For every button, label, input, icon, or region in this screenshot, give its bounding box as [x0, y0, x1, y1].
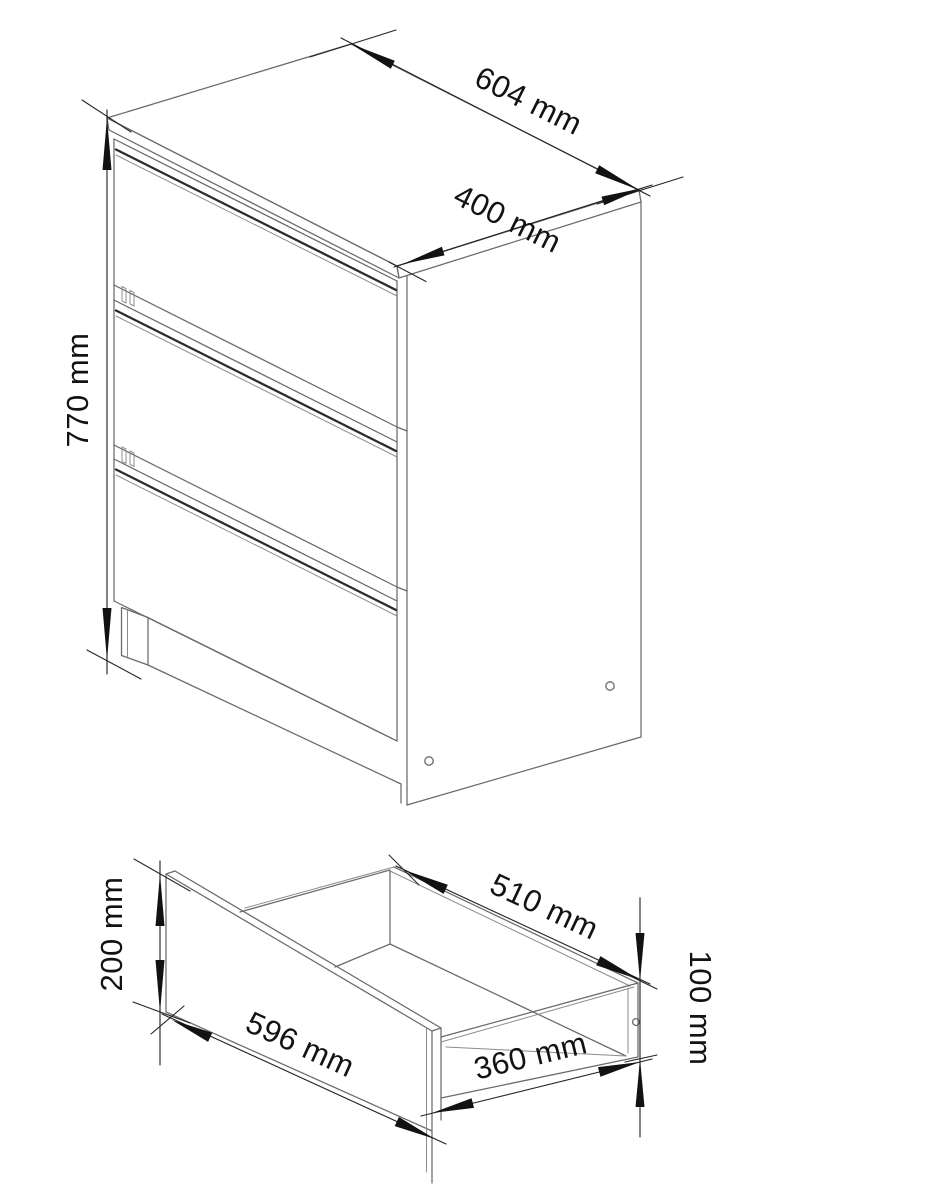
- drawer2-side-step: [397, 587, 407, 591]
- cabinet-height-dimension: 770 mm: [60, 100, 141, 679]
- side-depth-arrow-left: [432, 1098, 474, 1113]
- side-height-ext-top: [626, 974, 657, 989]
- drawer-height-ext-bottom: [133, 1002, 190, 1023]
- drawer3-groove-thin: [116, 475, 396, 616]
- drawer-height-arrow-bottom: [156, 960, 165, 1012]
- width-arrow-right: [595, 165, 639, 190]
- drawer2-top-edge: [114, 300, 397, 442]
- drawer1-groove-dark: [116, 150, 396, 291]
- cabinet-height-label: 770 mm: [60, 333, 95, 448]
- drawer3-top-edge: [114, 459, 397, 601]
- right-side-rim-outer: [441, 983, 638, 1037]
- height-arrow-top: [103, 118, 112, 170]
- furniture-dimension-diagram: 770 mm 604 mm 400 mm: [0, 0, 937, 1200]
- drawer2-groove-thin: [116, 316, 396, 457]
- drawer1-top-edge: [114, 139, 397, 281]
- depth-arrow-left: [403, 247, 445, 264]
- left-side-rim-outer: [240, 870, 390, 912]
- drawer-height-label: 200 mm: [94, 877, 129, 992]
- drawer-side-depth-label: 360 mm: [470, 1025, 590, 1086]
- drawer-side-depth-dimension: 360 mm: [421, 1025, 652, 1116]
- drawer1-groove-thin: [116, 155, 396, 296]
- drawer-side-height-dimension: 100 mm: [625, 898, 718, 1137]
- drawer1-bottom-edge: [114, 285, 397, 427]
- side-height-arrow-top: [636, 933, 645, 981]
- back-width-arrow-left: [404, 870, 448, 894]
- side-bottom-edge: [407, 737, 641, 805]
- front-width-arrow-right: [395, 1117, 435, 1139]
- cabinet-front-face: [114, 139, 407, 803]
- cabinet-side-panel: [407, 202, 641, 805]
- cam-hole-front: [425, 757, 433, 765]
- base-top-edge: [148, 618, 397, 742]
- height-ext-bottom: [87, 650, 141, 679]
- drawer-back-width-dimension: 510 mm: [389, 855, 650, 984]
- drawer3-groove-dark: [116, 470, 396, 611]
- drawer2-groove-dark: [116, 311, 396, 452]
- back-width-arrow-right: [596, 956, 640, 980]
- cabinet-width-dimension: 604 mm: [310, 30, 683, 204]
- right-side-rim-inner: [441, 987, 634, 1042]
- drawer1-side-step: [397, 427, 407, 431]
- cabinet-top-slab: [107, 44, 641, 278]
- drawer-height-arrow-top: [156, 874, 165, 926]
- cam-hole-back: [606, 682, 614, 690]
- cabinet-left-foot: [122, 608, 149, 666]
- height-arrow-bottom: [103, 608, 112, 660]
- front-panel-face: [166, 874, 432, 1131]
- cabinet-depth-dimension: 400 mm: [389, 177, 652, 281]
- drawer-side-height-label: 100 mm: [683, 951, 718, 1066]
- floor-left-edge: [335, 944, 390, 967]
- width-ext-left: [310, 30, 396, 57]
- cabinet-width-label: 604 mm: [469, 59, 588, 142]
- left-side-rim-inner: [245, 867, 394, 908]
- drawer2-bottom-edge: [114, 445, 397, 587]
- depth-arrow-right: [602, 188, 644, 205]
- cabinet-figure: 770 mm 604 mm 400 mm: [60, 30, 683, 805]
- technical-drawing-canvas: 770 mm 604 mm 400 mm: [0, 0, 937, 1200]
- width-arrow-left: [351, 44, 395, 69]
- side-height-arrow-bottom: [636, 1059, 645, 1107]
- front-panel-rim-end: [432, 1028, 441, 1031]
- back-width-ext-left: [389, 855, 419, 885]
- drawer-figure: 200 mm 510 mm 100 mm 360 mm: [94, 855, 718, 1183]
- drawer-height-dimension: 200 mm: [94, 859, 190, 1065]
- cabinet-top-front-edge: [107, 118, 399, 278]
